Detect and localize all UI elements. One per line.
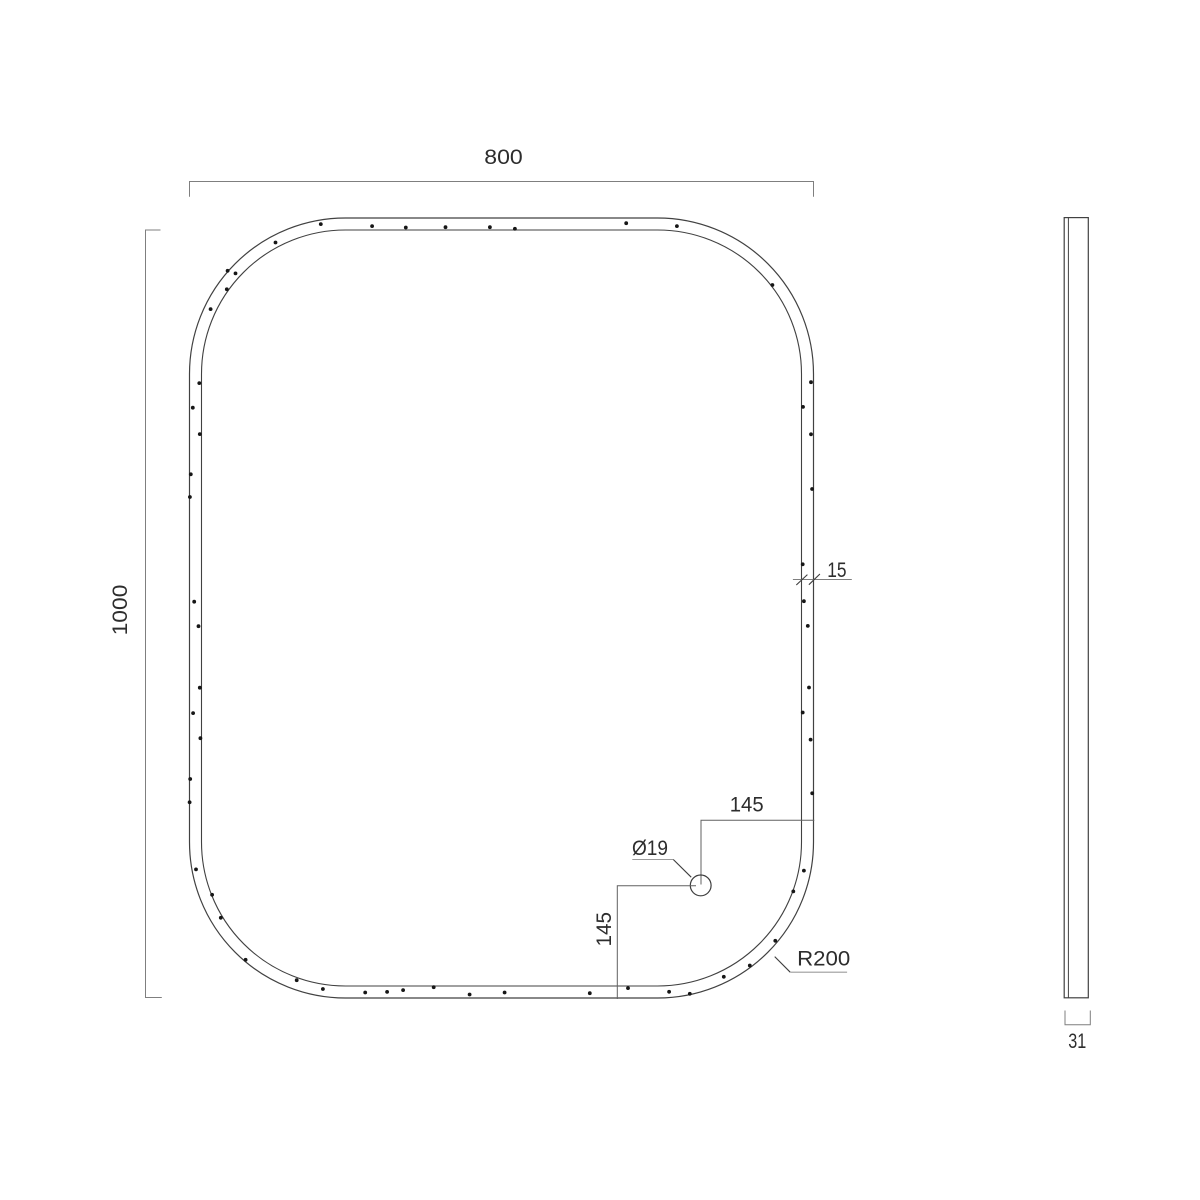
svg-text:Ø19: Ø19	[632, 837, 668, 860]
svg-text:31: 31	[1068, 1030, 1086, 1053]
svg-text:145: 145	[730, 794, 764, 817]
svg-text:800: 800	[484, 146, 523, 169]
svg-text:R200: R200	[797, 947, 850, 970]
svg-text:1000: 1000	[109, 585, 132, 636]
svg-text:15: 15	[827, 559, 846, 582]
svg-text:145: 145	[593, 912, 616, 947]
